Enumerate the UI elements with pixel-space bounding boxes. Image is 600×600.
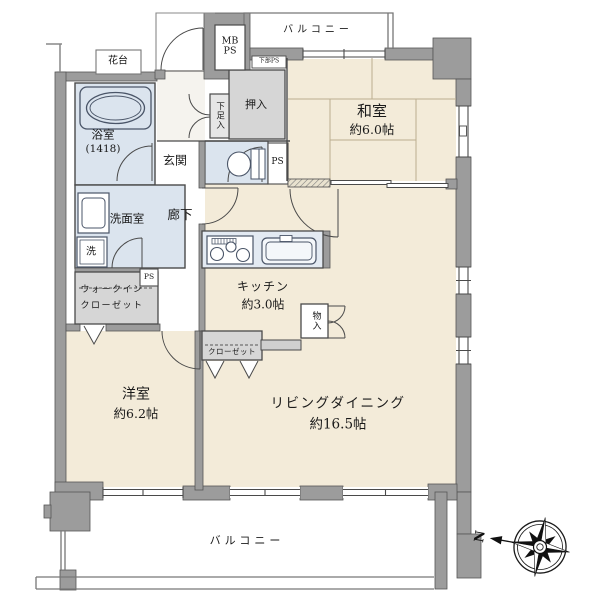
window-washitsu-right (456, 106, 471, 157)
floor-plan: N バルコニー 花台 MB PS 下部PS 玄関 下足入 押入 和室 約6.0帖… (0, 0, 600, 600)
ps-toilet-label: PS (271, 158, 283, 168)
compass-rose: N (468, 506, 575, 582)
exterior-ledge (46, 44, 62, 72)
youshitsu-label: 洋室 (122, 387, 150, 402)
window-living-bottom-1 (230, 487, 300, 498)
north-label: N (472, 529, 489, 543)
bathroom-label: 浴室 (92, 129, 115, 142)
shoe-cabinet-label: 下足入 (214, 102, 223, 131)
wic-label-line1: ウォークイン (80, 286, 143, 296)
living-dining-label: リビングダイニング (271, 397, 406, 412)
laundry-label: 洗 (86, 247, 96, 258)
bathroom-size-label: (1418) (86, 144, 121, 156)
oshiire-label: 押入 (245, 99, 267, 111)
genkan-label: 玄関 (163, 154, 187, 167)
hallway-label: 廊下 (167, 208, 192, 222)
youshitsu-size-label: 約6.2帖 (114, 407, 159, 421)
lower-ps-label: 下部PS (259, 59, 279, 66)
window-youshitsu-bottom (103, 487, 183, 498)
north-needle (489, 534, 515, 547)
room-bathroom (75, 83, 155, 185)
wic-label-line2: クローゼット (80, 302, 143, 312)
sink-icon (262, 236, 316, 265)
window-living-bottom-2 (343, 487, 428, 498)
window-washitsu-top (303, 49, 385, 59)
kitchen-size-label: 約3.0帖 (241, 298, 284, 311)
window-living-right-2 (456, 337, 471, 364)
corner-pillar (433, 38, 471, 79)
room-genkan (157, 70, 205, 141)
balcony-bottom-label: バルコニー (210, 535, 285, 547)
mb-ps-label: MB PS (222, 37, 239, 58)
kitchen-counter (202, 231, 323, 268)
balcony-top-label: バルコニー (283, 25, 353, 36)
kitchen-label: キッチン (237, 280, 289, 293)
monoire-label: 物入 (310, 311, 320, 331)
ps-washroom-label: PS (144, 273, 154, 281)
entrance-door (161, 28, 203, 70)
flower-stand-label: 花台 (108, 56, 128, 67)
window-living-right-1 (456, 267, 471, 294)
washroom-label: 洗面室 (110, 213, 145, 226)
washbasin-icon (78, 193, 109, 233)
balcony-post (60, 570, 76, 590)
living-dining-size-label: 約16.5帖 (309, 418, 366, 433)
balcony-right-wall (435, 492, 447, 589)
ps-label: PS (224, 47, 237, 57)
tatami-edge-hatch (288, 179, 330, 187)
balcony-left-pillar (50, 492, 90, 531)
closet-label: クローゼット (208, 348, 256, 356)
washitsu-size-label: 約6.0帖 (350, 123, 395, 137)
washitsu-label: 和室 (357, 103, 387, 120)
stove-icon (207, 236, 253, 264)
floor-plan-drawing: N (0, 0, 600, 600)
